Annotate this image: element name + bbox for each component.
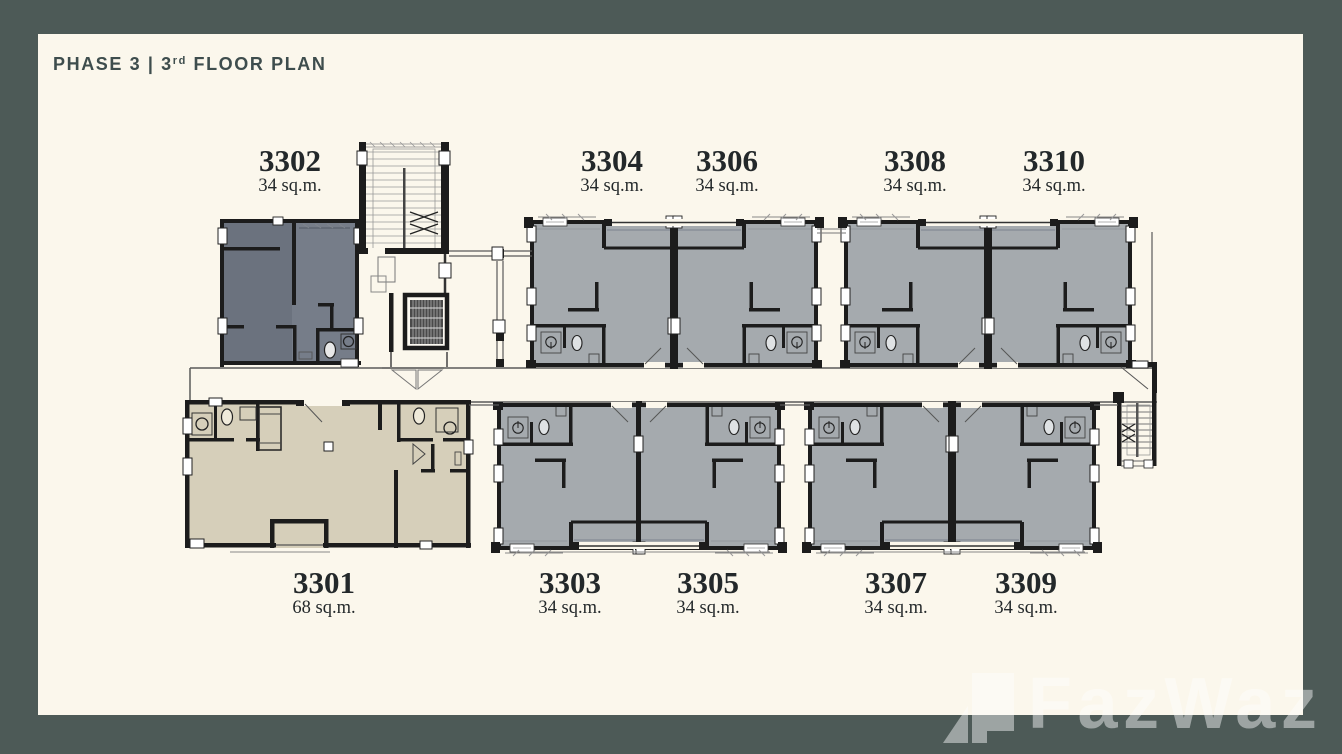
svg-text:3301: 3301 xyxy=(293,565,355,600)
svg-text:3305: 3305 xyxy=(677,565,739,600)
svg-text:3308: 3308 xyxy=(884,143,946,178)
svg-text:3302: 3302 xyxy=(259,143,321,178)
svg-text:34 sq.m.: 34 sq.m. xyxy=(883,176,946,196)
svg-text:34 sq.m.: 34 sq.m. xyxy=(258,176,321,196)
svg-text:68 sq.m.: 68 sq.m. xyxy=(292,598,355,618)
svg-text:3310: 3310 xyxy=(1023,143,1085,178)
svg-text:34 sq.m.: 34 sq.m. xyxy=(1022,176,1085,196)
svg-text:3309: 3309 xyxy=(995,565,1057,600)
svg-text:34 sq.m.: 34 sq.m. xyxy=(676,598,739,618)
svg-text:3303: 3303 xyxy=(539,565,601,600)
svg-text:34 sq.m.: 34 sq.m. xyxy=(695,176,758,196)
svg-text:FazWaz: FazWaz xyxy=(1028,664,1322,744)
svg-text:3304: 3304 xyxy=(581,143,643,178)
svg-text:3306: 3306 xyxy=(696,143,758,178)
svg-text:3307: 3307 xyxy=(865,565,927,600)
svg-text:34 sq.m.: 34 sq.m. xyxy=(864,598,927,618)
svg-text:PHASE 3 | 3rd FLOOR PLAN: PHASE 3 | 3rd FLOOR PLAN xyxy=(53,54,326,74)
svg-text:34 sq.m.: 34 sq.m. xyxy=(538,598,601,618)
svg-text:34 sq.m.: 34 sq.m. xyxy=(580,176,643,196)
svg-text:34 sq.m.: 34 sq.m. xyxy=(994,598,1057,618)
